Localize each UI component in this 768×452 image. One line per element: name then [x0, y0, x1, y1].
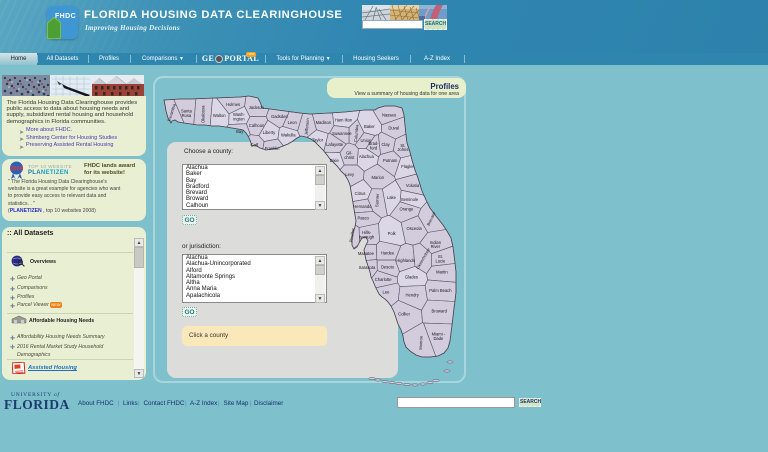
svg-text:Leon: Leon — [288, 120, 298, 125]
svg-text:Franklin: Franklin — [265, 146, 280, 151]
svg-text:Dixie: Dixie — [330, 158, 340, 163]
svg-text:Madison: Madison — [316, 120, 332, 125]
svg-text:Broward: Broward — [431, 309, 447, 314]
svg-text:Monroe: Monroe — [418, 335, 424, 350]
svg-text:Orange: Orange — [399, 207, 414, 212]
svg-text:Lake: Lake — [387, 195, 397, 200]
svg-text:Seminole: Seminole — [401, 197, 419, 202]
svg-text:Putnam: Putnam — [383, 158, 398, 163]
svg-text:Duval: Duval — [388, 126, 399, 131]
svg-text:Marion: Marion — [371, 175, 384, 180]
svg-text:Hendry: Hendry — [406, 293, 420, 298]
svg-text:Charlotte: Charlotte — [375, 277, 392, 282]
svg-text:Taylor: Taylor — [312, 137, 324, 142]
svg-text:Volusia: Volusia — [406, 183, 420, 188]
svg-text:Gulf: Gulf — [250, 143, 258, 148]
svg-text:Wakulla: Wakulla — [281, 133, 296, 138]
svg-text:Pasco: Pasco — [357, 216, 369, 221]
svg-text:Calhoun: Calhoun — [249, 123, 265, 128]
svg-text:Glades: Glades — [405, 275, 418, 280]
svg-text:Osceola: Osceola — [406, 226, 422, 231]
svg-text:Bay: Bay — [236, 129, 244, 134]
svg-text:Sumter: Sumter — [374, 193, 380, 207]
svg-text:Nassau: Nassau — [382, 112, 397, 117]
svg-text:SantaRosa: SantaRosa — [181, 108, 193, 117]
svg-text:Baker: Baker — [364, 124, 375, 129]
svg-text:Suwannee: Suwannee — [332, 131, 352, 136]
svg-text:Sarasota: Sarasota — [359, 265, 376, 270]
svg-text:Walton: Walton — [213, 113, 226, 118]
svg-text:Wash-ington: Wash-ington — [233, 112, 245, 121]
svg-text:Gadsden: Gadsden — [271, 114, 289, 119]
svg-text:Okaloosa: Okaloosa — [201, 105, 206, 123]
svg-text:Martin: Martin — [436, 269, 448, 274]
svg-text:Lafayette: Lafayette — [326, 142, 344, 147]
svg-text:Polk: Polk — [388, 231, 397, 236]
svg-text:Citrus: Citrus — [355, 191, 366, 196]
svg-text:Levy: Levy — [345, 172, 355, 177]
svg-text:Alachua: Alachua — [359, 154, 375, 159]
svg-text:Collier: Collier — [398, 312, 410, 317]
svg-text:Palm Beach: Palm Beach — [429, 288, 452, 293]
svg-text:Clay: Clay — [381, 142, 390, 147]
svg-text:Ham ilton: Ham ilton — [335, 118, 353, 123]
svg-text:Lee: Lee — [383, 290, 391, 295]
svg-text:Liberty: Liberty — [263, 130, 276, 135]
svg-text:Hardee: Hardee — [381, 251, 395, 256]
svg-text:IndianRiver: IndianRiver — [430, 240, 442, 249]
svg-text:Flagler: Flagler — [401, 164, 414, 169]
svg-text:Holmes: Holmes — [226, 102, 240, 107]
svg-text:Hernando: Hernando — [353, 204, 372, 209]
svg-text:Desoto: Desoto — [381, 264, 395, 269]
svg-text:Manatee: Manatee — [358, 251, 375, 256]
svg-text:Jackson: Jackson — [249, 105, 265, 110]
svg-text:Highlands: Highlands — [396, 258, 414, 263]
